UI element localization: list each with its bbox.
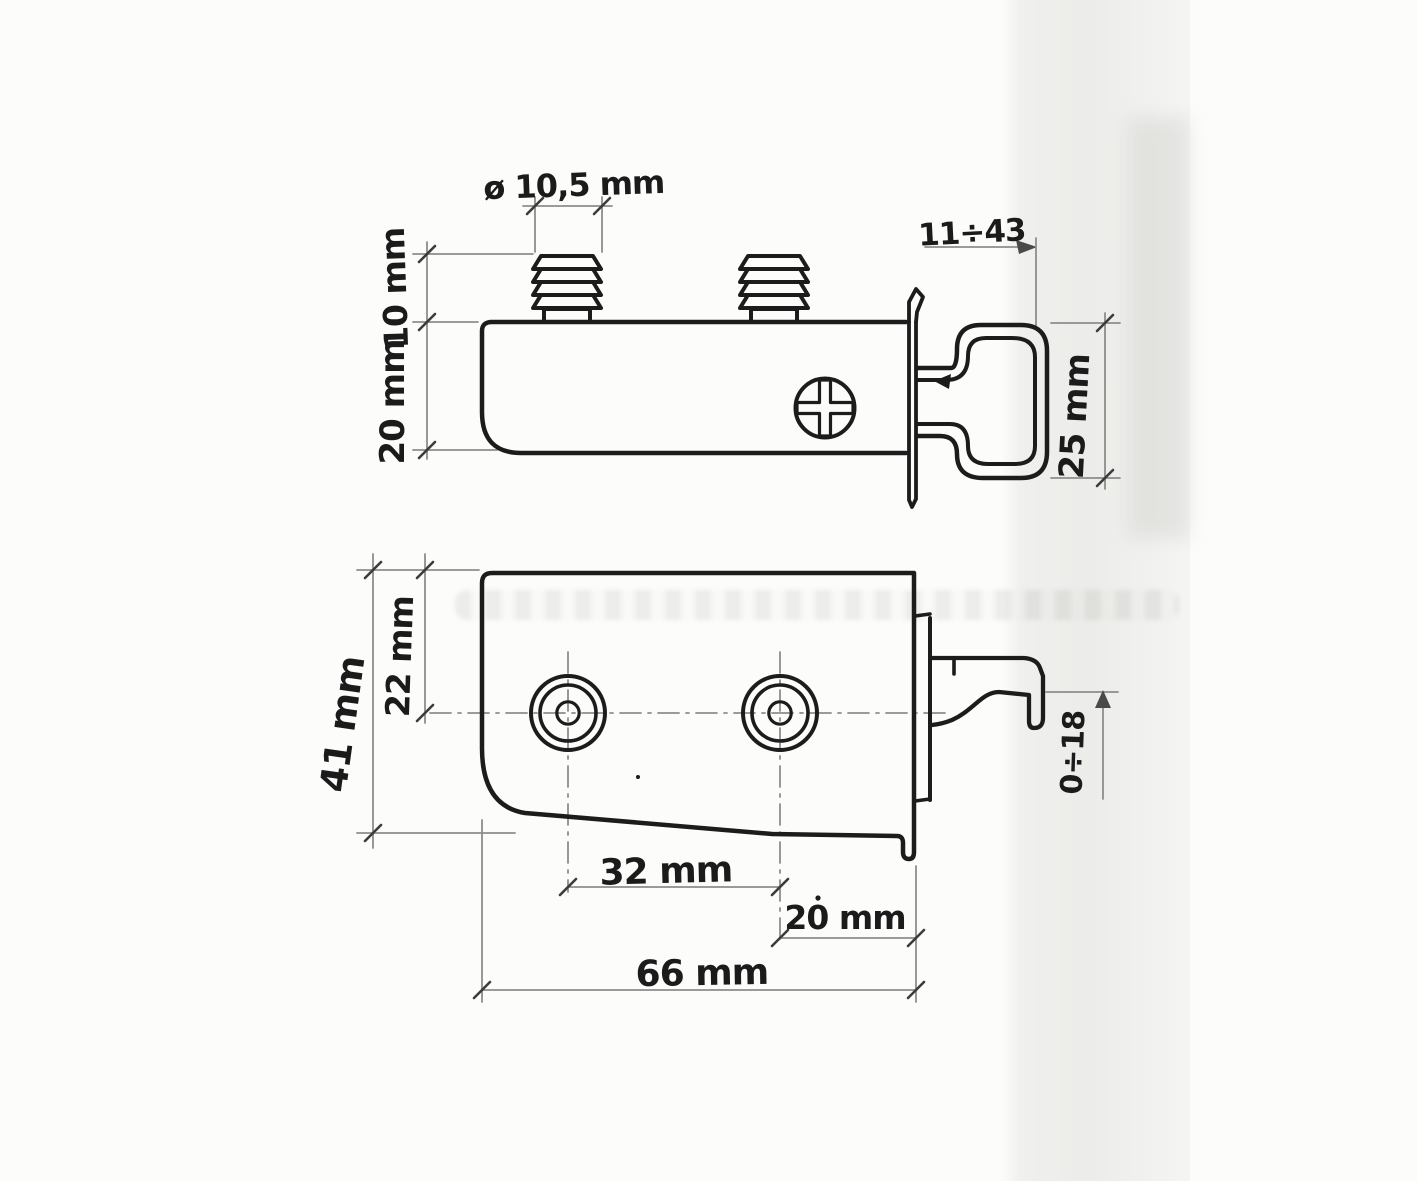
side-view: ø 10,5 mm 10 mm 20 mm 11÷43 25 mm xyxy=(373,163,1120,507)
mounting-blade xyxy=(909,289,923,507)
dim-label-body-height: 20 mm xyxy=(373,339,413,464)
plan-view-dimension-labels: 22 mm 41 mm 32 mm 20 mm 66 mm 0÷18 xyxy=(312,595,1093,995)
plan-view: 22 mm 41 mm 32 mm 20 mm 66 mm 0÷18 xyxy=(312,554,1118,1002)
dim-label-hook-edge-offset: 20 mm xyxy=(784,898,905,937)
dim-label-stud-diameter: ø 10,5 mm xyxy=(483,163,665,207)
plan-view-blade-strip xyxy=(915,614,930,801)
rail-hook-clamp xyxy=(917,325,1047,478)
dowel-stud-left xyxy=(533,256,601,322)
dowel-stud-right xyxy=(740,256,808,322)
plan-view-hook-arm xyxy=(932,658,1043,728)
scanned-drawing-page: ø 10,5 mm 10 mm 20 mm 11÷43 25 mm xyxy=(0,0,1417,1181)
dim-label-mount-depth-range: 11÷43 xyxy=(917,212,1026,254)
dim-label-hook-height: 25 mm xyxy=(1052,353,1098,480)
dim-label-stud-height: 10 mm xyxy=(373,227,416,349)
dim-label-hook-travel-range: 0÷18 xyxy=(1055,710,1093,795)
plan-view-dimension-lines xyxy=(357,554,1118,1002)
cabinet-hanger-technical-drawing: ø 10,5 mm 10 mm 20 mm 11÷43 25 mm xyxy=(0,0,1417,1181)
dim-label-hole-spacing: 32 mm xyxy=(599,849,733,893)
dim-label-plate-length: 66 mm xyxy=(635,952,768,995)
dim-label-plate-depth: 41 mm xyxy=(312,654,374,795)
dim-label-hole-center-offset: 22 mm xyxy=(378,595,421,717)
phillips-screw-head xyxy=(796,379,855,438)
plan-view-plate-outline xyxy=(482,573,914,859)
